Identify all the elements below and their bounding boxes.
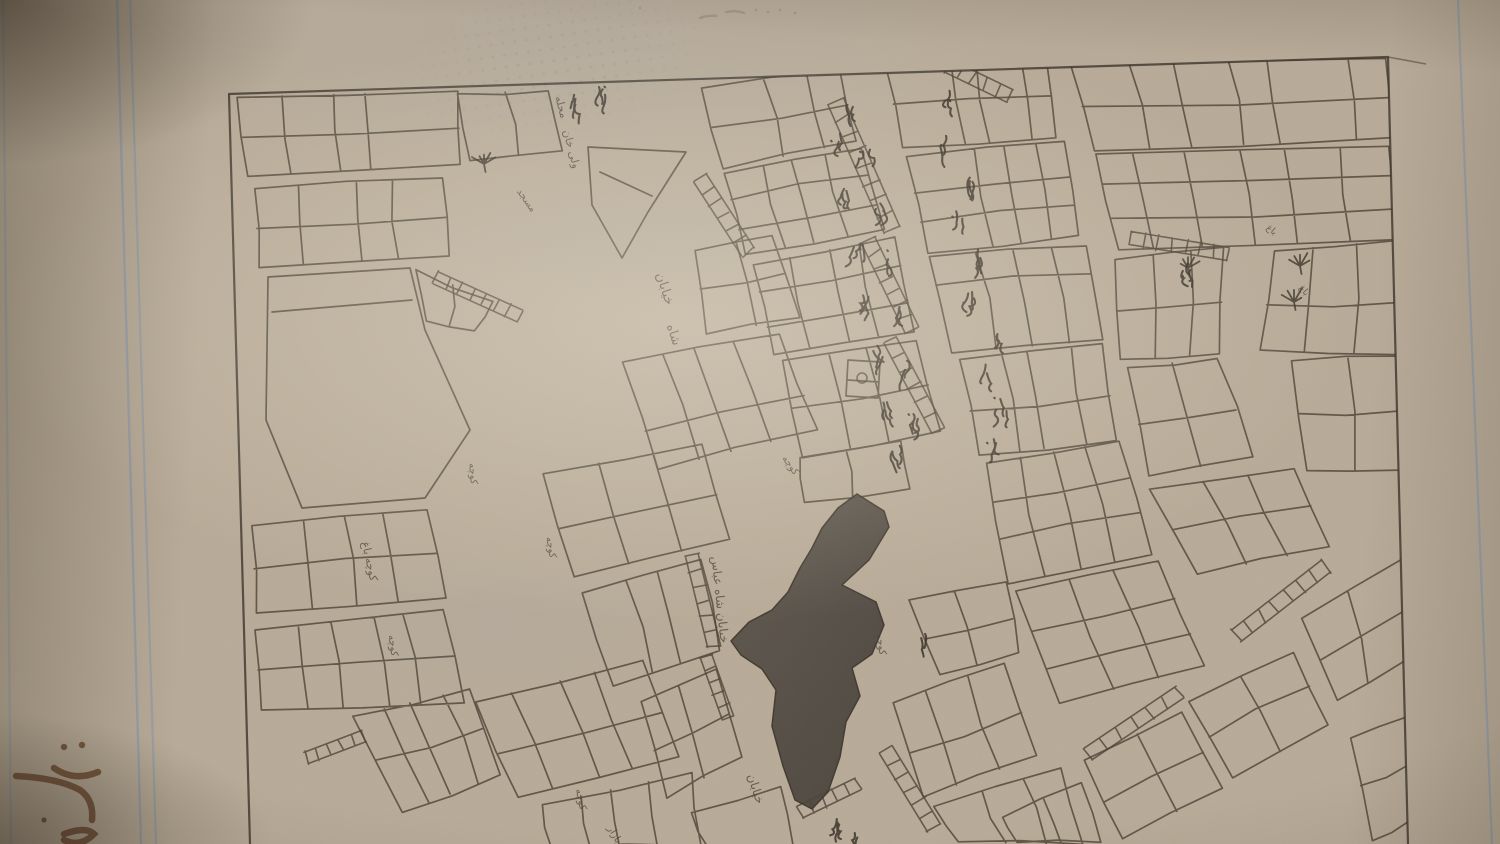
paper-grain [0, 0, 1500, 844]
photographed-map-page: محلهولی خانمسجدخیابانشاهکوچهخیابان شاه ع… [0, 0, 1500, 844]
map-drawing: محلهولی خانمسجدخیابانشاهکوچهخیابان شاه ع… [0, 0, 1500, 844]
